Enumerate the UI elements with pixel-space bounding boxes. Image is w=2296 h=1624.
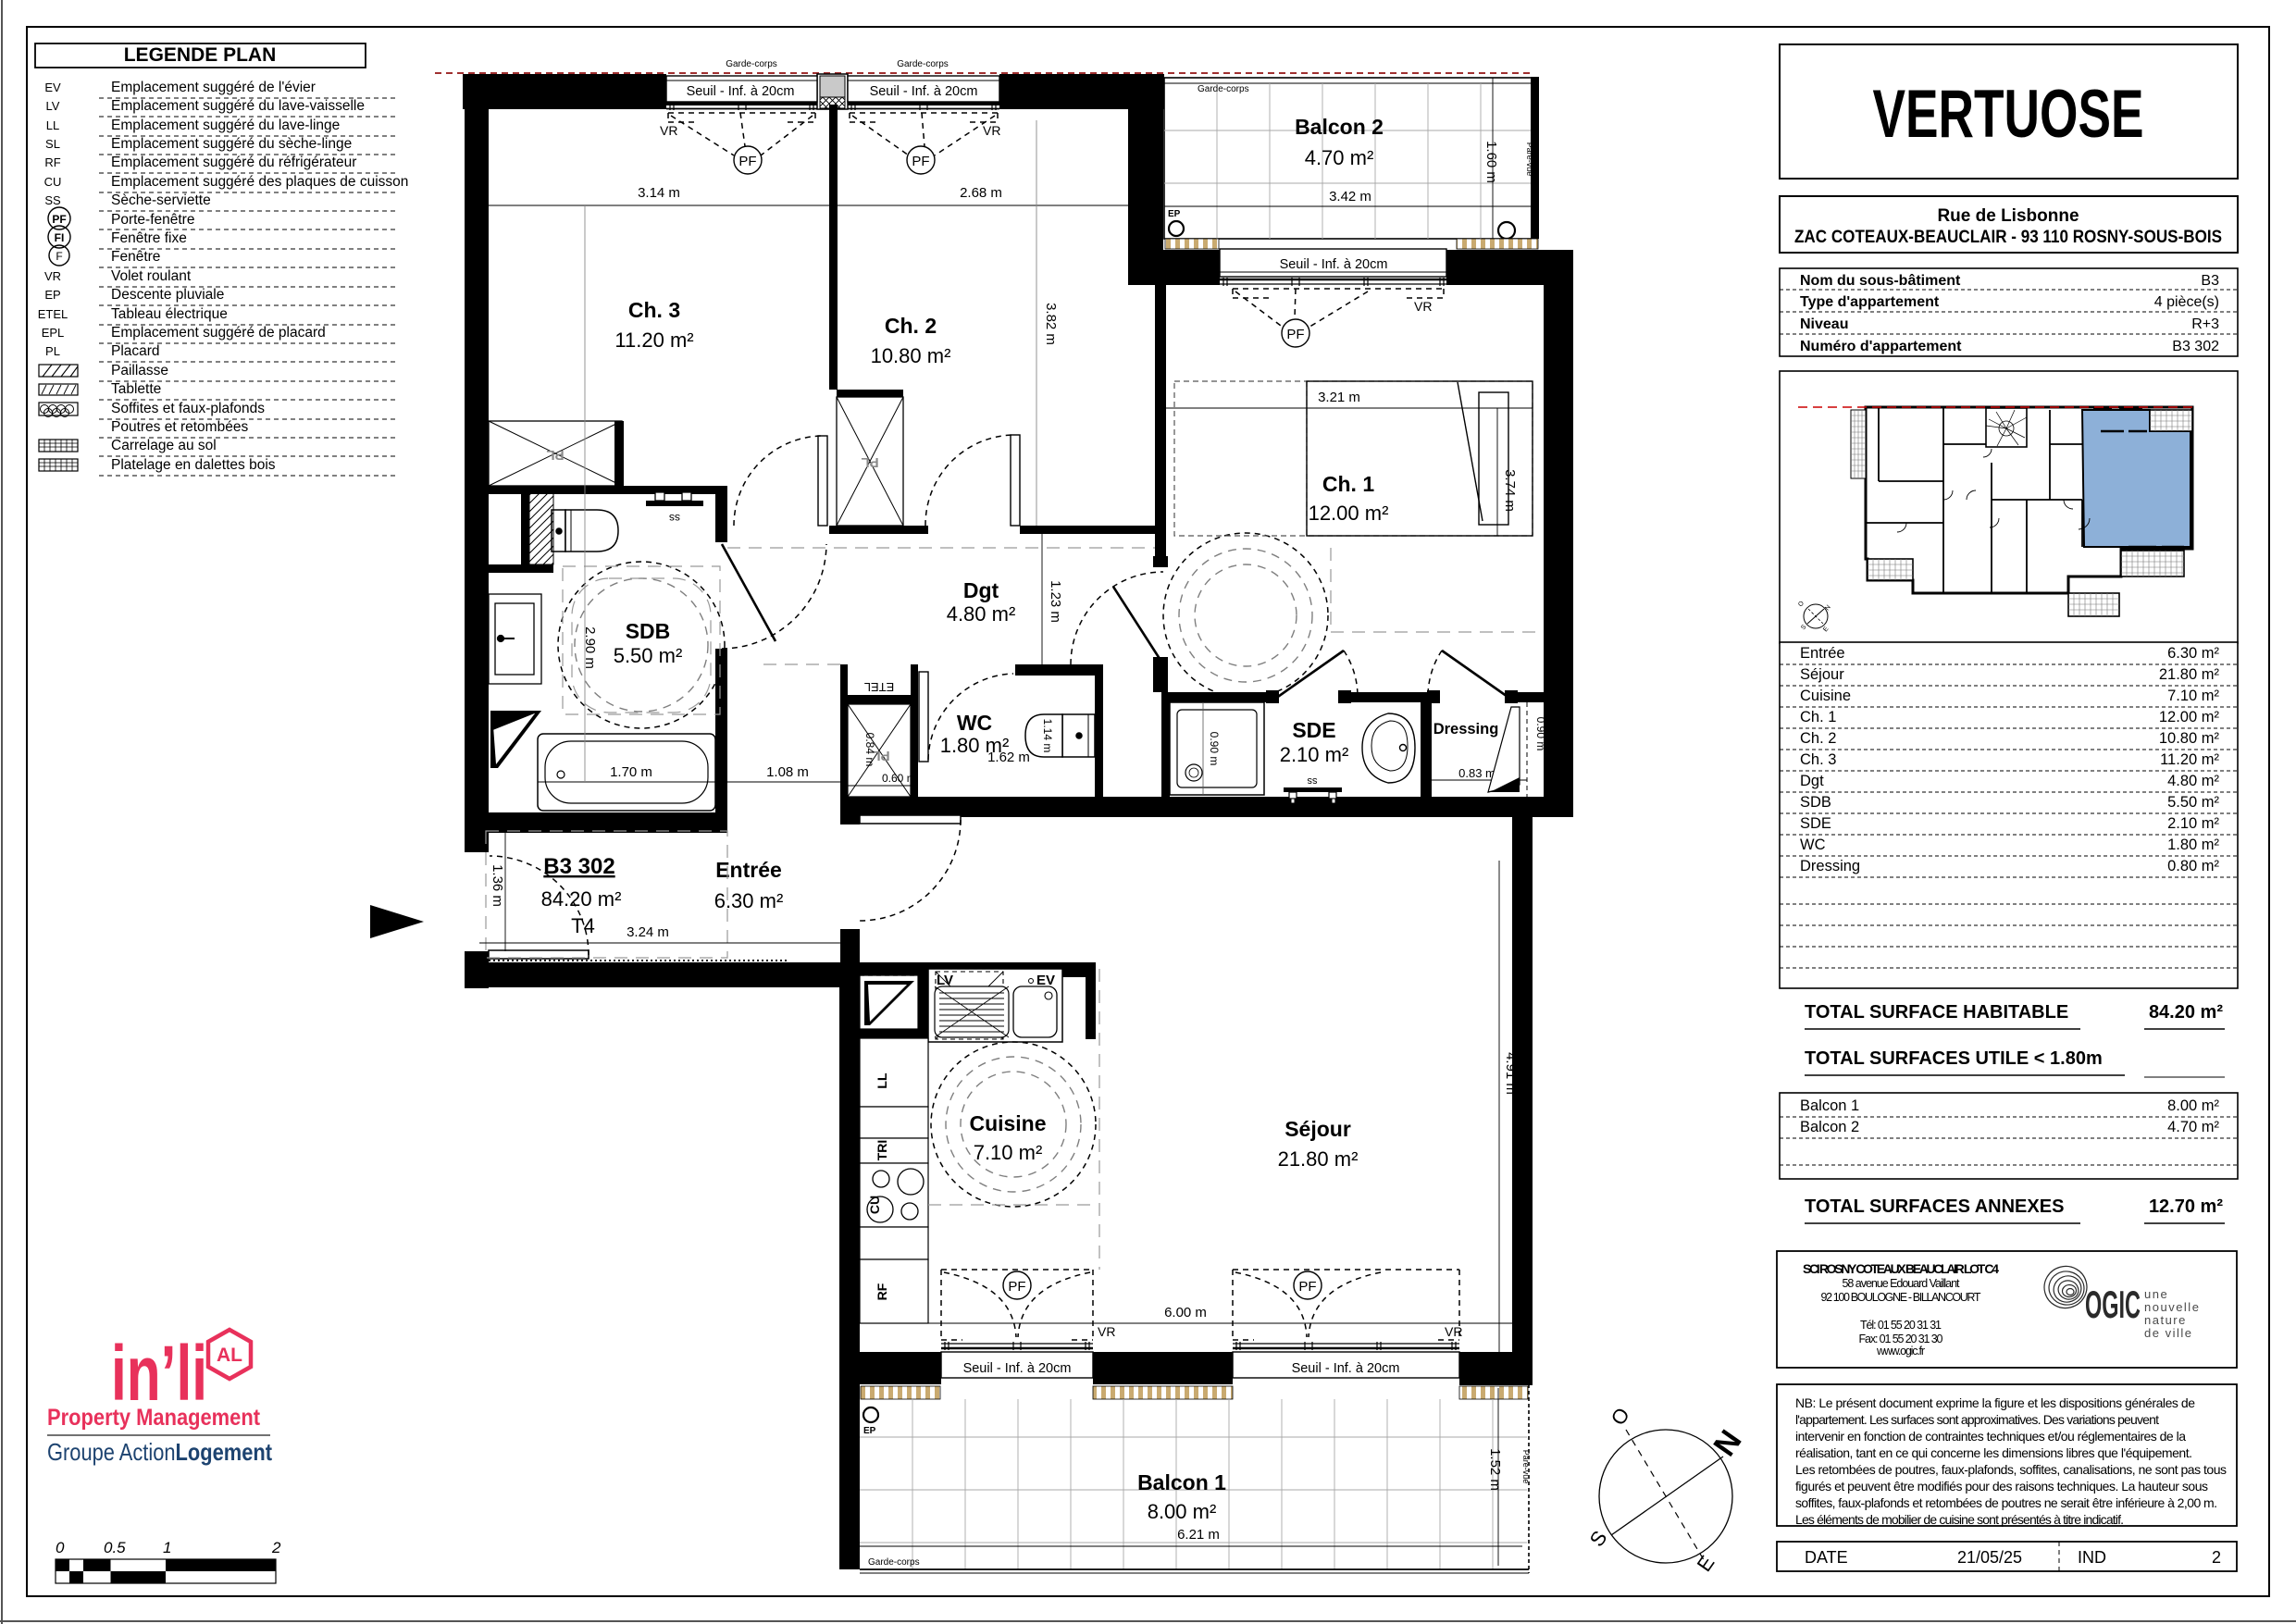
svg-text:0.5: 0.5 [104, 1539, 126, 1556]
svg-text:Ch. 1: Ch. 1 [1322, 472, 1374, 496]
svg-text:Garde-corps: Garde-corps [726, 59, 777, 69]
svg-text:Les retombées de poutres, faux: Les retombées de poutres, faux-plafonds,… [1795, 1462, 2227, 1477]
svg-text:Soffites et faux-plafonds: Soffites et faux-plafonds [111, 401, 265, 416]
svg-text:3.82 m: 3.82 m [1043, 303, 1059, 345]
svg-text:Dressing: Dressing [1800, 858, 1860, 874]
svg-text:TRI: TRI [875, 1140, 889, 1161]
svg-text:Fenêtre: Fenêtre [111, 249, 160, 265]
svg-text:Niveau: Niveau [1800, 316, 1848, 332]
svg-text:Ch. 1: Ch. 1 [1800, 709, 1836, 725]
svg-text:B3 302: B3 302 [2172, 339, 2219, 354]
svg-text:Groupe ActionLogement: Groupe ActionLogement [47, 1438, 272, 1466]
svg-text:Ch. 2: Ch. 2 [885, 314, 937, 338]
svg-text:11.20 m²: 11.20 m² [614, 329, 693, 352]
svg-text:Seuil - Inf. à 20cm: Seuil - Inf. à 20cm [963, 1361, 1072, 1376]
svg-text:5.50 m²: 5.50 m² [614, 644, 683, 667]
svg-text:in’li: in’li [111, 1330, 207, 1417]
svg-text:nature: nature [2144, 1313, 2187, 1327]
svg-text:Poutres et retombées: Poutres et retombées [111, 419, 248, 435]
svg-text:VR: VR [1445, 1324, 1462, 1339]
svg-text:T4: T4 [571, 914, 595, 937]
svg-text:SDE: SDE [1292, 718, 1335, 742]
svg-text:SDB: SDB [626, 619, 671, 643]
svg-text:10.80 m²: 10.80 m² [871, 344, 951, 367]
svg-text:6.30 m²: 6.30 m² [714, 889, 784, 912]
svg-text:soffites, faux-plafonds et ret: soffites, faux-plafonds et retombées de … [1795, 1495, 2217, 1510]
svg-text:VR: VR [44, 269, 61, 283]
svg-text:Balcon 1: Balcon 1 [1800, 1097, 1859, 1114]
svg-text:4.70 m²: 4.70 m² [1305, 146, 1374, 169]
svg-text:Seuil - Inf. à 20cm: Seuil - Inf. à 20cm [870, 84, 978, 99]
svg-text:92 100 BOULOGNE - BILLANCOURT: 92 100 BOULOGNE - BILLANCOURT [1821, 1291, 1981, 1304]
svg-text:FI: FI [55, 231, 65, 244]
svg-text:AL: AL [217, 1345, 242, 1366]
svg-text:21.80 m²: 21.80 m² [1278, 1147, 1359, 1171]
svg-text:F: F [56, 250, 62, 263]
svg-text:0: 0 [56, 1539, 65, 1556]
svg-text:ETEL: ETEL [38, 307, 68, 321]
svg-text:Emplacement suggéré du lave-va: Emplacement suggéré du lave-vaisselle [111, 98, 365, 114]
svg-text:VR: VR [660, 123, 677, 138]
svg-text:4 pièce(s): 4 pièce(s) [2154, 294, 2219, 310]
svg-text:12.00 m²: 12.00 m² [1309, 502, 1389, 525]
svg-text:6.21 m: 6.21 m [1177, 1527, 1220, 1543]
svg-text:Cuisine: Cuisine [969, 1111, 1046, 1135]
svg-text:IND: IND [2078, 1548, 2106, 1567]
svg-text:3.24 m: 3.24 m [627, 924, 669, 940]
svg-text:3.42 m: 3.42 m [1329, 189, 1371, 205]
svg-text:SL: SL [45, 137, 60, 151]
svg-text:LV: LV [937, 973, 953, 988]
svg-text:2.10 m²: 2.10 m² [2167, 815, 2219, 832]
svg-text:Property Management: Property Management [47, 1405, 261, 1431]
svg-text:réalisation, tant en ce qui co: réalisation, tant en ce qui concerne les… [1795, 1445, 2192, 1460]
svg-text:WC: WC [957, 711, 992, 735]
svg-text:VERTUOSE: VERTUOSE [1873, 77, 2144, 152]
svg-text:Type d'appartement: Type d'appartement [1800, 294, 1940, 310]
svg-text:PF: PF [738, 154, 756, 169]
svg-text:PL: PL [861, 454, 878, 470]
svg-text:Dgt: Dgt [963, 578, 999, 602]
svg-text:LL: LL [46, 118, 59, 132]
svg-text:Garde-corps: Garde-corps [897, 59, 949, 69]
svg-text:nouvelle: nouvelle [2144, 1300, 2200, 1314]
svg-text:LL: LL [875, 1072, 889, 1089]
svg-text:SCI ROSNY COTEAUX BEAUCLAIR LO: SCI ROSNY COTEAUX BEAUCLAIR LOT C4 [1803, 1261, 1999, 1276]
svg-text:4.91 m: 4.91 m [1503, 1052, 1519, 1095]
svg-text:CU: CU [44, 175, 62, 189]
svg-text:6.00 m: 6.00 m [1164, 1305, 1207, 1320]
svg-text:Emplacement suggéré du sèche-l: Emplacement suggéré du sèche-linge [111, 136, 352, 152]
svg-text:0.90 m: 0.90 m [1534, 717, 1547, 751]
svg-text:1.08 m: 1.08 m [766, 764, 809, 780]
svg-text:1.23 m: 1.23 m [1048, 580, 1063, 623]
svg-text:Emplacement suggéré des plaque: Emplacement suggéré des plaques de cuiss… [111, 174, 408, 190]
svg-text:figurés et peuvent être modifi: figurés et peuvent être modifiés pour de… [1795, 1479, 2208, 1494]
svg-text:Emplacement suggéré du réfrigé: Emplacement suggéré du réfrigérateur [111, 155, 356, 170]
svg-text:Sèche-serviette: Sèche-serviette [111, 192, 211, 208]
svg-text:Placard: Placard [111, 343, 160, 359]
svg-text:WC: WC [1800, 837, 1826, 853]
svg-text:4.70 m²: 4.70 m² [2167, 1119, 2219, 1135]
svg-text:RF: RF [875, 1283, 889, 1300]
svg-text:EPL: EPL [42, 326, 65, 340]
svg-text:Balcon 2: Balcon 2 [1800, 1119, 1859, 1135]
svg-text:0.90 m: 0.90 m [1208, 732, 1221, 766]
svg-text:Les éléments de mobilier de cu: Les éléments de mobilier de cuisine sont… [1795, 1512, 2124, 1527]
svg-text:ETEL: ETEL [864, 680, 895, 694]
svg-text:Balcon 1: Balcon 1 [1137, 1470, 1226, 1494]
svg-text:Numéro d'appartement: Numéro d'appartement [1800, 339, 1962, 354]
svg-text:Volet roulant: Volet roulant [111, 268, 192, 284]
svg-text:Ch. 2: Ch. 2 [1800, 730, 1836, 747]
svg-text:EV: EV [1036, 973, 1055, 988]
svg-text:3.74 m: 3.74 m [1502, 469, 1518, 512]
svg-text:de ville: de ville [2144, 1326, 2192, 1340]
svg-text:0.83 m: 0.83 m [1458, 766, 1496, 780]
svg-text:www.ogic.fr: www.ogic.fr [1876, 1345, 1925, 1357]
svg-text:1: 1 [163, 1539, 171, 1556]
svg-text:TOTAL SURFACE HABITABLE: TOTAL SURFACE HABITABLE [1805, 1002, 2068, 1023]
svg-text:l'appartement. Les surfaces so: l'appartement. Les surfaces sont approxi… [1795, 1412, 2159, 1427]
svg-text:Ch. 3: Ch. 3 [1800, 751, 1836, 768]
svg-text:1.60 m: 1.60 m [1483, 141, 1499, 183]
svg-text:2.10 m²: 2.10 m² [1280, 743, 1349, 766]
svg-text:10.80 m²: 10.80 m² [2159, 730, 2220, 747]
svg-text:2.68 m: 2.68 m [960, 185, 1002, 201]
svg-text:RF: RF [44, 155, 60, 169]
svg-text:NB: Le présent document exprim: NB: Le présent document exprime la figur… [1795, 1395, 2195, 1410]
svg-text:VR: VR [1414, 299, 1432, 314]
svg-text:Seuil - Inf. à 20cm: Seuil - Inf. à 20cm [687, 84, 795, 99]
svg-text:Fax: 01 55 20 31 30: Fax: 01 55 20 31 30 [1859, 1333, 1943, 1345]
svg-text:Pare-vue: Pare-vue [1525, 143, 1534, 177]
svg-text:4.80 m²: 4.80 m² [947, 602, 1016, 626]
svg-text:EV: EV [44, 81, 61, 94]
svg-text:84.20 m²: 84.20 m² [541, 887, 622, 911]
svg-text:3.45 m: 3.45 m [474, 298, 490, 341]
svg-text:0.84 m: 0.84 m [863, 733, 876, 767]
svg-text:une: une [2144, 1287, 2168, 1301]
svg-text:PF: PF [1298, 1279, 1316, 1295]
svg-text:Paillasse: Paillasse [111, 363, 168, 378]
svg-text:21.80 m²: 21.80 m² [2159, 666, 2220, 683]
svg-text:Porte-fenêtre: Porte-fenêtre [111, 212, 194, 228]
svg-text:DATE: DATE [1805, 1548, 1848, 1567]
svg-text:Garde-corps: Garde-corps [868, 1557, 920, 1568]
svg-text:Tél: 01 55 20 31 31: Tél: 01 55 20 31 31 [1860, 1319, 1942, 1332]
svg-text:11.20 m²: 11.20 m² [2160, 751, 2219, 768]
svg-text:Entrée: Entrée [1800, 645, 1845, 662]
svg-text:Platelage en dalettes bois: Platelage en dalettes bois [111, 457, 276, 473]
svg-text:8.00 m²: 8.00 m² [1148, 1500, 1217, 1523]
svg-text:TOTAL SURFACES ANNEXES: TOTAL SURFACES ANNEXES [1805, 1196, 2064, 1217]
svg-text:7.10 m²: 7.10 m² [2167, 688, 2219, 704]
svg-text:Dgt: Dgt [1800, 773, 1824, 789]
svg-text:84.20 m²: 84.20 m² [2149, 1002, 2223, 1023]
svg-text:PF: PF [1008, 1279, 1025, 1295]
svg-text:12.70 m²: 12.70 m² [2149, 1196, 2223, 1217]
svg-text:B3 302: B3 302 [543, 854, 614, 879]
svg-text:1.80 m²: 1.80 m² [2167, 837, 2219, 853]
svg-text:Rue de Lisbonne: Rue de Lisbonne [1937, 206, 2079, 226]
svg-text:PF: PF [912, 154, 929, 169]
svg-text:58 avenue Edouard Vaillant: 58 avenue Edouard Vaillant [1843, 1277, 1961, 1290]
svg-text:4.80 m²: 4.80 m² [2167, 773, 2219, 789]
svg-text:VR: VR [1098, 1324, 1115, 1339]
svg-text:PL: PL [546, 447, 564, 463]
svg-text:7.10 m²: 7.10 m² [974, 1141, 1043, 1164]
svg-text:Emplacement suggéré de l'évier: Emplacement suggéré de l'évier [111, 80, 316, 95]
svg-text:3.14 m: 3.14 m [638, 185, 680, 201]
svg-text:Entrée: Entrée [715, 858, 782, 882]
svg-text:Tablette: Tablette [111, 381, 161, 397]
svg-text:Seuil - Inf. à 20cm: Seuil - Inf. à 20cm [1280, 257, 1388, 272]
svg-text:Dressing: Dressing [1433, 721, 1499, 738]
svg-text:PL: PL [45, 344, 60, 358]
svg-text:LV: LV [46, 99, 60, 113]
svg-text:ss: ss [1307, 775, 1318, 787]
svg-text:EP: EP [1168, 209, 1181, 219]
svg-text:Carrelage au sol: Carrelage au sol [111, 438, 217, 453]
svg-text:SDE: SDE [1800, 815, 1831, 832]
svg-text:12.00 m²: 12.00 m² [2159, 709, 2220, 725]
svg-text:Emplacement suggéré de placard: Emplacement suggéré de placard [111, 325, 326, 341]
svg-text:Séjour: Séjour [1800, 666, 1844, 683]
svg-text:intervenir en fonction de cont: intervenir en fonction de contraintes te… [1795, 1429, 2186, 1444]
svg-text:PF: PF [1286, 327, 1304, 342]
svg-text:Nom du sous-bâtiment: Nom du sous-bâtiment [1800, 273, 1961, 289]
svg-text:5.50 m²: 5.50 m² [2167, 794, 2219, 811]
svg-text:Balcon 2: Balcon 2 [1295, 115, 1384, 139]
svg-text:Emplacement suggéré du lave-li: Emplacement suggéré du lave-linge [111, 118, 340, 133]
svg-text:Séjour: Séjour [1285, 1117, 1351, 1141]
svg-text:1.52 m: 1.52 m [1487, 1448, 1503, 1491]
svg-text:8.00 m²: 8.00 m² [2167, 1097, 2219, 1114]
svg-text:SS: SS [44, 193, 61, 207]
svg-text:0.80 m²: 0.80 m² [2167, 858, 2219, 874]
svg-text:LEGENDE PLAN: LEGENDE PLAN [124, 44, 277, 66]
svg-text:21/05/25: 21/05/25 [1957, 1548, 2022, 1567]
svg-text:Descente pluviale: Descente pluviale [111, 287, 224, 303]
svg-text:OGIC: OGIC [2085, 1283, 2141, 1326]
svg-text:3.21 m: 3.21 m [1318, 390, 1360, 405]
svg-text:PF: PF [52, 213, 66, 226]
svg-text:1.14 m: 1.14 m [1041, 719, 1054, 753]
svg-text:Ch. 3: Ch. 3 [628, 298, 680, 322]
svg-text:Fenêtre fixe: Fenêtre fixe [111, 230, 187, 246]
svg-text:6.30 m²: 6.30 m² [2167, 645, 2219, 662]
svg-text:2: 2 [2212, 1548, 2221, 1567]
svg-text:1.70 m: 1.70 m [610, 764, 652, 780]
svg-text:SDB: SDB [1800, 794, 1831, 811]
svg-text:0.60 m: 0.60 m [882, 772, 916, 785]
svg-text:Cuisine: Cuisine [1800, 688, 1851, 704]
svg-text:ZAC COTEAUX-BEAUCLAIR - 93 110: ZAC COTEAUX-BEAUCLAIR - 93 110 ROSNY-SOU… [1794, 228, 2222, 247]
svg-text:EP: EP [863, 1426, 876, 1436]
svg-text:1.36 m: 1.36 m [490, 864, 505, 907]
svg-text:Tableau électrique: Tableau électrique [111, 306, 228, 322]
svg-text:2: 2 [271, 1539, 281, 1556]
svg-text:B3: B3 [2201, 273, 2219, 289]
svg-text:Seuil - Inf. à 20cm: Seuil - Inf. à 20cm [1292, 1361, 1400, 1376]
svg-text:EP: EP [44, 288, 60, 302]
svg-text:Pare-vue: Pare-vue [1521, 1450, 1531, 1484]
svg-text:R+3: R+3 [2191, 316, 2219, 332]
svg-text:1.62 m: 1.62 m [987, 750, 1030, 765]
svg-text:VR: VR [983, 123, 1000, 138]
svg-text:Garde-corps: Garde-corps [1198, 84, 1249, 94]
svg-text:TOTAL SURFACES UTILE < 1.80m: TOTAL SURFACES UTILE < 1.80m [1805, 1048, 2103, 1069]
svg-text:ss: ss [669, 512, 680, 525]
